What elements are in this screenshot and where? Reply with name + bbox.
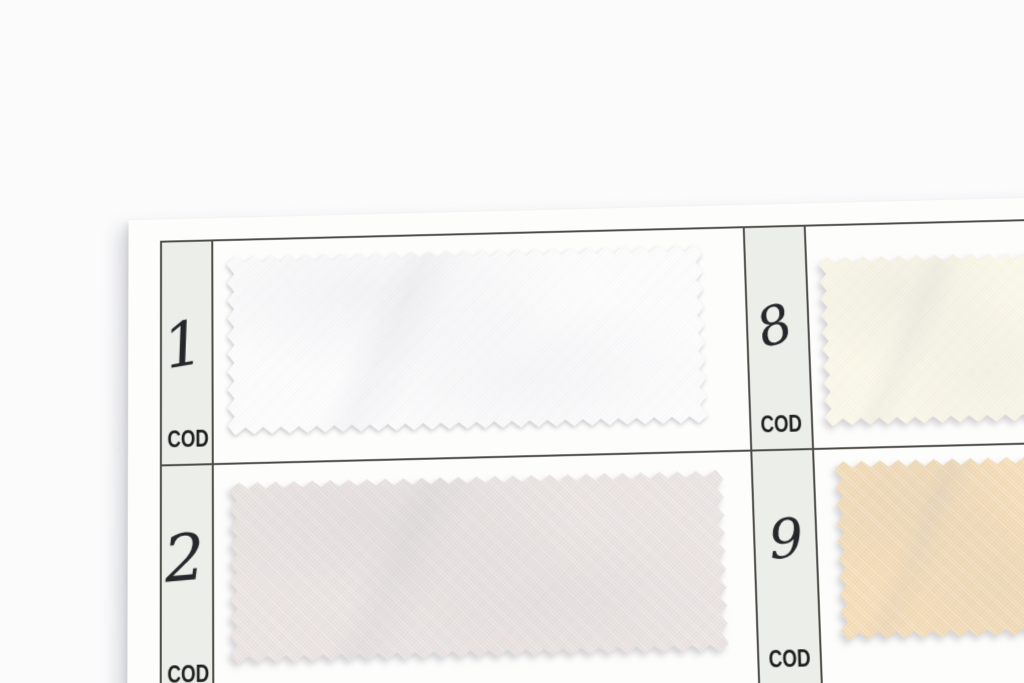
handwritten-number-9: 9 [766,511,805,568]
label-strip-8: 8 COD [745,227,812,450]
handwritten-number-1: 1 [159,311,207,378]
swatch-cell-9 [814,438,1024,683]
label-strip-1: 1 COD [162,241,212,464]
cod-label-9: COD [766,645,814,675]
label-strip-9: 9 COD [752,450,821,683]
swatch-cell-2 [214,452,759,683]
swatch-grid: 1 COD 8 COD 2 COD [160,213,1024,683]
cod-label-8: COD [758,411,806,440]
fabric-swatch-9-wrap [834,455,1024,640]
swatch-cell-1 [213,228,750,463]
fabric-swatch-1-wrap [227,245,707,435]
label-strip-2: 2 COD [162,465,213,683]
fabric-swatch-8-wrap [819,251,1024,426]
fabric-swatch-2-wrap [230,470,729,664]
fabric-swatch-9 [834,455,1024,640]
cod-label-2: COD [167,660,206,683]
handwritten-number-8: 8 [750,296,799,356]
cod-label-1: COD [167,426,206,455]
handwritten-number-2: 2 [161,525,206,593]
photo-backdrop: 1 COD 8 COD 2 COD [0,0,1024,683]
fabric-swatch-2 [230,470,729,664]
swatch-cell-8 [806,215,1024,448]
swatch-card-paper: 1 COD 8 COD 2 COD [127,191,1024,683]
fabric-swatch-1 [227,245,707,435]
fabric-swatch-8 [819,251,1024,426]
